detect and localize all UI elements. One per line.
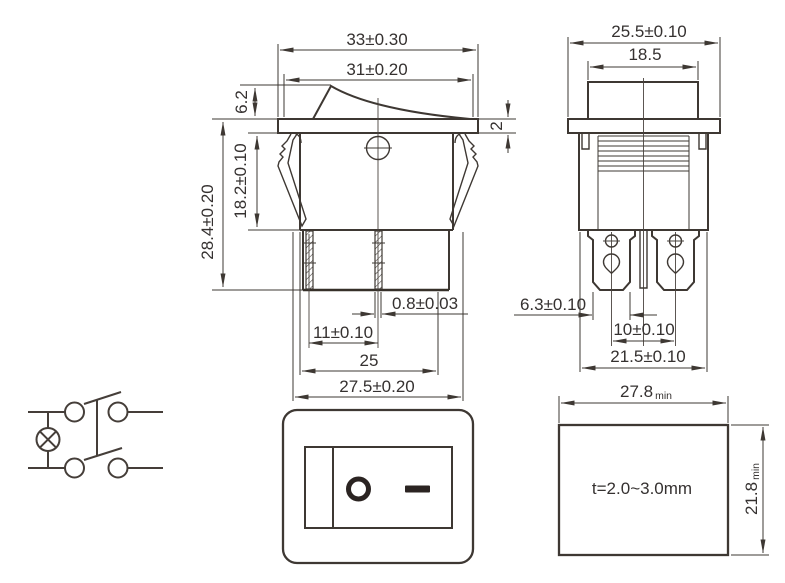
mounting-clip-left: [278, 134, 306, 226]
dim-body-height: 18.2±0.10: [231, 143, 250, 219]
terminal-edge-right: [375, 231, 382, 289]
side-view: 33±0.30 31±0.20 6.2 18.2±0.10 28.4±0.20 …: [198, 30, 516, 401]
technical-drawing-page: 33±0.30 31±0.20 6.2 18.2±0.10 28.4±0.20 …: [0, 0, 785, 583]
rocker-switch-drawing: 33±0.30 31±0.20 6.2 18.2±0.10 28.4±0.20 …: [0, 0, 785, 583]
contact-top-left: [65, 403, 84, 422]
dim-terminal-thickness: 0.8±0.03: [392, 294, 458, 313]
dim-body-width-front: 21.5±0.10: [610, 347, 686, 366]
front-view: 25.5±0.10 18.5 6.3±0.10 10±0.10: [514, 22, 720, 372]
contact-bottom-right: [109, 459, 128, 478]
dim-overall-height: 28.4±0.20: [198, 184, 217, 260]
dim-rocker-height: 6.2: [232, 90, 251, 114]
panel-thickness-note: t=2.0~3.0mm: [592, 479, 692, 498]
dim-terminal-pitch: 10±0.10: [613, 320, 674, 339]
contact-bottom-left: [65, 459, 84, 478]
dim-width-overall: 33±0.30: [346, 30, 407, 49]
dim-rocker-width: 18.5: [628, 45, 661, 64]
dim-base-width: 25: [360, 351, 379, 370]
contact-top-right: [109, 403, 128, 422]
mounting-clip-right: [450, 134, 478, 226]
flange-front: [568, 119, 720, 133]
rocker-front: [588, 82, 698, 119]
face-bezel: [283, 410, 473, 563]
rocker-profile: [313, 86, 470, 119]
dim-cutout-width: 27.8min: [620, 382, 672, 402]
dim-terminal-blade-width: 6.3±0.10: [520, 295, 586, 314]
circuit-schematic: [28, 392, 163, 478]
dim-flange-thickness: 2: [487, 121, 506, 130]
panel-cutout-view: 27.8min t=2.0~3.0mm 21.8min: [559, 382, 769, 555]
switch-front-face: [283, 410, 473, 563]
dim-width-rocker: 31±0.20: [346, 60, 407, 79]
dim-body-width: 27.5±0.20: [339, 377, 415, 396]
terminal-edge-left: [306, 231, 313, 289]
dim-cutout-height: 21.8min: [742, 463, 762, 515]
off-symbol-icon: [349, 479, 369, 499]
on-symbol-icon: [405, 486, 430, 493]
dim-flange-width: 25.5±0.10: [611, 22, 687, 41]
dim-terminal-offset: 11±0.10: [313, 323, 373, 342]
